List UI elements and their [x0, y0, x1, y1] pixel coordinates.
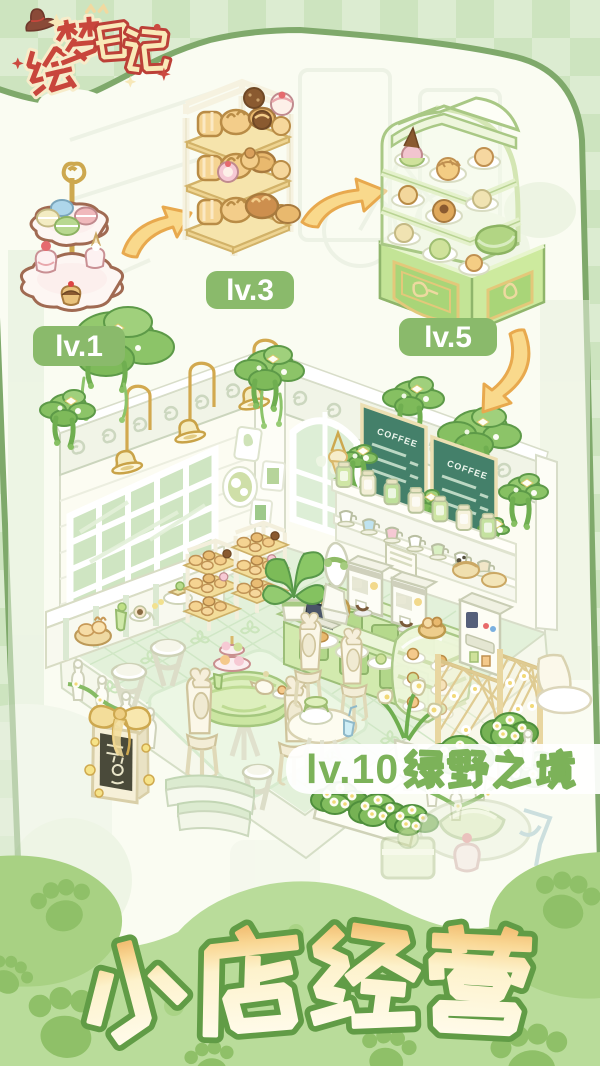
svg-text:lv.3: lv.3	[226, 274, 274, 307]
svg-text:lv.1: lv.1	[55, 330, 103, 363]
svg-text:lv.10: lv.10	[306, 746, 399, 792]
svg-text:lv.5: lv.5	[424, 321, 472, 354]
